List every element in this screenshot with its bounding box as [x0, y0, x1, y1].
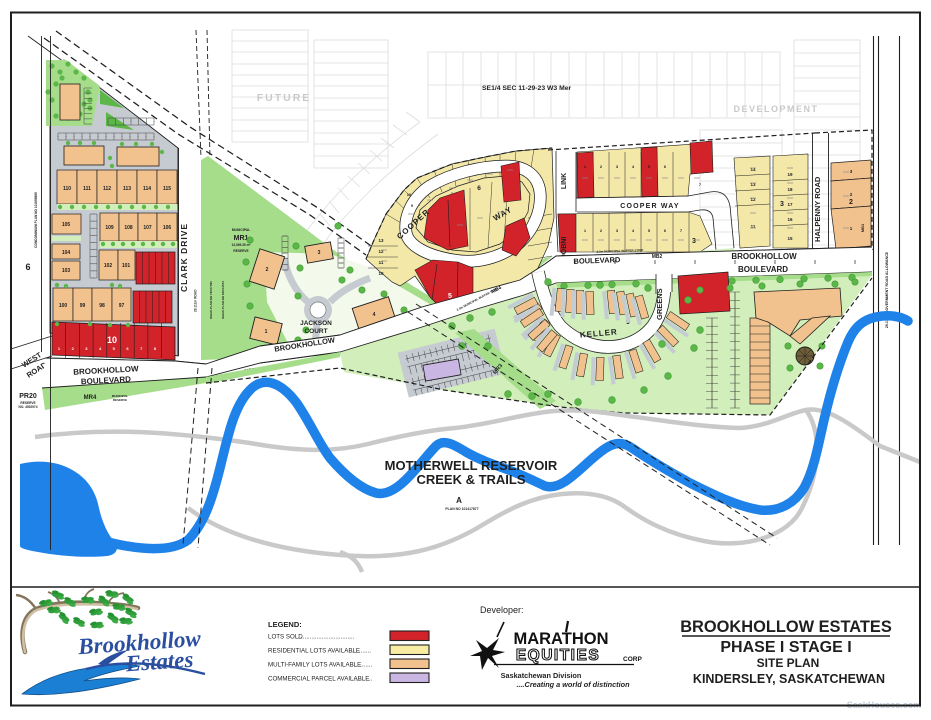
- svg-text:CLARK DRIVE: CLARK DRIVE: [179, 223, 189, 292]
- svg-text:2: 2: [266, 267, 269, 273]
- svg-text:100: 100: [59, 303, 68, 309]
- svg-text:NO. 4002974: NO. 4002974: [19, 405, 38, 409]
- svg-text:............: ............: [352, 662, 373, 669]
- svg-text:3: 3: [318, 250, 321, 256]
- svg-text:MB2: MB2: [652, 254, 663, 260]
- svg-text:10: 10: [378, 271, 384, 276]
- svg-text:MB1: MB1: [860, 223, 865, 232]
- svg-text:............: ............: [352, 676, 373, 683]
- svg-text:MR4: MR4: [84, 395, 97, 401]
- svg-text:3: 3: [692, 238, 696, 245]
- svg-text:17: 17: [787, 202, 793, 207]
- svg-text:110: 110: [63, 186, 71, 192]
- svg-text:CREEK & TRAILS: CREEK & TRAILS: [416, 472, 525, 487]
- svg-text:RESERVE: RESERVE: [233, 249, 248, 253]
- svg-text:RESIDENTIAL LOTS AVAILABLE: RESIDENTIAL LOTS AVAILABLE: [268, 648, 360, 655]
- svg-text:.............: .............: [349, 648, 372, 655]
- svg-text:REGD PLAN NO 73K07090: REGD PLAN NO 73K07090: [209, 281, 213, 319]
- svg-text:SE1/4 SEC 11-29-23 W3 Mer: SE1/4 SEC 11-29-23 W3 Mer: [482, 85, 572, 92]
- svg-text:CORP: CORP: [623, 656, 642, 663]
- svg-text:99: 99: [80, 303, 86, 309]
- svg-text:112: 112: [103, 186, 111, 192]
- svg-text:CONDOMINIUM PLAN NO 101899889: CONDOMINIUM PLAN NO 101899889: [34, 192, 38, 248]
- svg-text:108: 108: [124, 225, 133, 231]
- svg-text:LEGEND:: LEGEND:: [268, 620, 302, 629]
- svg-text:BOULEVARD: BOULEVARD: [738, 265, 788, 274]
- svg-text:PHASE I STAGE I: PHASE I STAGE I: [720, 639, 851, 656]
- svg-text:MULTI-FAMILY LOTS AVAILABLE: MULTI-FAMILY LOTS AVAILABLE: [268, 662, 361, 669]
- svg-text:..............................: ..................................: [296, 634, 355, 641]
- svg-text:15: 15: [787, 236, 793, 241]
- svg-text:109: 109: [105, 225, 114, 231]
- svg-text:16: 16: [787, 217, 793, 222]
- svg-text:BROOKHOLLOW: BROOKHOLLOW: [731, 252, 797, 261]
- svg-text:PR20: PR20: [19, 393, 37, 400]
- svg-text:Saskatchewan Division: Saskatchewan Division: [501, 671, 582, 680]
- svg-text:COURT: COURT: [304, 328, 327, 335]
- svg-text:13: 13: [378, 238, 384, 243]
- svg-text:DEVELOPMENT: DEVELOPMENT: [733, 104, 818, 114]
- svg-text:19: 19: [787, 172, 793, 177]
- svg-text:10: 10: [407, 192, 412, 197]
- svg-text:4: 4: [373, 312, 376, 318]
- svg-text:MARATHON: MARATHON: [513, 630, 608, 648]
- svg-text:BOULEVARD: BOULEVARD: [573, 255, 621, 266]
- svg-text:REGD PLAN NO 60K04574: REGD PLAN NO 60K04574: [221, 281, 225, 319]
- svg-text:98: 98: [99, 303, 105, 309]
- svg-text:111: 111: [83, 186, 91, 192]
- svg-text:97: 97: [119, 303, 125, 309]
- svg-text:KINDERSLEY, SASKATCHEWAN: KINDERSLEY, SASKATCHEWAN: [693, 672, 885, 686]
- svg-text:1: 1: [265, 329, 268, 335]
- svg-text:2: 2: [849, 199, 853, 206]
- svg-text:RESERVE: RESERVE: [113, 398, 127, 402]
- svg-text:SITE PLAN: SITE PLAN: [757, 656, 820, 670]
- svg-text:113: 113: [123, 186, 131, 192]
- svg-text:104: 104: [62, 250, 71, 256]
- svg-text:13,069.35 m²: 13,069.35 m²: [232, 243, 251, 247]
- svg-text:PLAN NO 101417877: PLAN NO 101417877: [445, 507, 478, 511]
- svg-text:MR1: MR1: [234, 235, 249, 242]
- svg-text:EQUITIES: EQUITIES: [516, 647, 600, 664]
- svg-text:114: 114: [143, 186, 151, 192]
- svg-text:Estates: Estates: [124, 647, 194, 677]
- svg-text:....Creating a world of distin: ....Creating a world of distinction: [516, 680, 630, 689]
- svg-text:GREENS: GREENS: [655, 288, 664, 320]
- svg-text:101: 101: [122, 263, 131, 269]
- svg-text:JACKSON: JACKSON: [300, 320, 332, 327]
- svg-text:COOPER WAY: COOPER WAY: [620, 203, 680, 210]
- svg-text:LINK: LINK: [561, 173, 568, 189]
- svg-text:6: 6: [477, 185, 481, 192]
- svg-text:107: 107: [143, 225, 152, 231]
- svg-text:BROOKHOLLOW ESTATES: BROOKHOLLOW ESTATES: [680, 618, 892, 636]
- svg-text:106: 106: [163, 225, 172, 231]
- svg-text:18: 18: [787, 187, 793, 192]
- svg-text:6: 6: [25, 262, 30, 272]
- svg-text:Developer:: Developer:: [480, 605, 524, 615]
- svg-text:MOTHERWELL RESERVOIR: MOTHERWELL RESERVOIR: [385, 458, 558, 473]
- svg-text:FUTURE: FUTURE: [257, 92, 312, 104]
- svg-text:115: 115: [163, 186, 171, 192]
- svg-text:A: A: [456, 496, 462, 505]
- svg-text:105: 105: [62, 222, 71, 228]
- svg-text:29.111m ROAD: 29.111m ROAD: [194, 289, 198, 312]
- svg-text:10: 10: [107, 335, 117, 345]
- svg-text:MUNICIPAL: MUNICIPAL: [232, 228, 251, 232]
- svg-text:103: 103: [62, 268, 71, 274]
- svg-text:3: 3: [780, 201, 784, 208]
- svg-text:HALPENNY ROAD: HALPENNY ROAD: [813, 176, 822, 242]
- svg-text:102: 102: [104, 263, 113, 269]
